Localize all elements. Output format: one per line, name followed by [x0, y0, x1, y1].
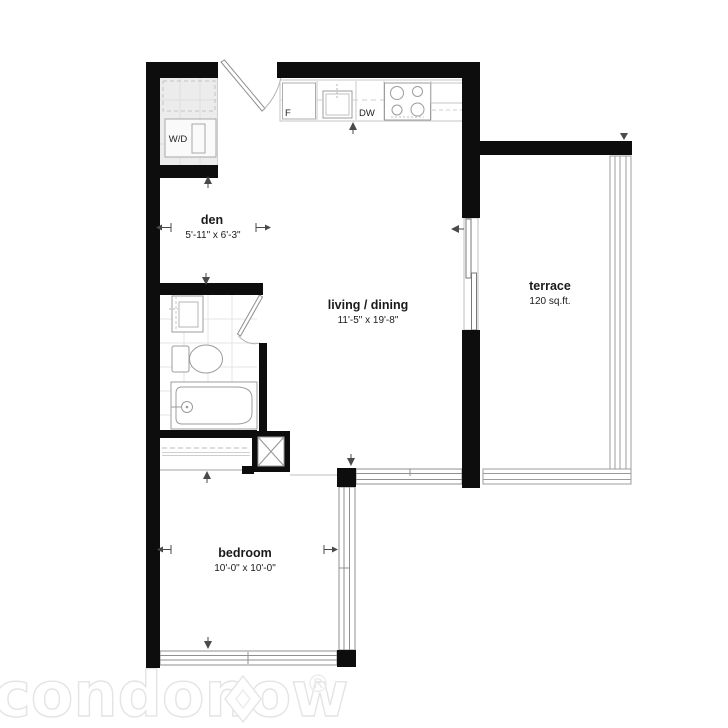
column-bedroom-top [337, 468, 356, 487]
living-dining-dims: 11'-5" x 19'-8" [338, 315, 399, 326]
terrace-sliding-door [464, 218, 478, 330]
watermark: condonow ® [0, 658, 348, 728]
sliding-door-panel-2 [472, 273, 477, 330]
kitchen: F DW [280, 80, 464, 121]
terrace-label: terrace [529, 279, 571, 293]
terrace-railing-bottom [483, 469, 631, 484]
bedroom-label: bedroom [218, 546, 271, 560]
kitchen-end-cabinet [431, 83, 463, 103]
living-dining-label: living / dining [328, 298, 409, 312]
wall-laundry-bottom [160, 165, 218, 178]
bedroom-right-window [339, 487, 355, 650]
wall-right-upper [462, 62, 480, 218]
terrace-railing-right [610, 156, 631, 469]
wall-bathroom-top [160, 283, 263, 295]
wall-bathroom-right [259, 343, 267, 432]
bathtub-drain-dot [186, 406, 189, 409]
dishwasher-label: DW [359, 108, 375, 119]
den-dims: 5'-11" x 6'-3" [185, 230, 241, 241]
fridge-label: F [285, 108, 291, 119]
shaft [252, 431, 290, 472]
wall-top-entry [146, 62, 218, 78]
toilet-bowl [190, 345, 223, 373]
column-bedroom-bottom [337, 650, 356, 667]
terrace-area: 120 sq.ft. [529, 296, 570, 307]
floor-plan-page: condonow ® W/D F DW [0, 0, 728, 728]
living-room-window [356, 469, 462, 484]
washer-dryer-label: W/D [169, 134, 188, 145]
kitchen-sink [323, 91, 352, 118]
bedroom-dims: 10'-0" x 10'-0" [214, 563, 276, 574]
toilet-tank [172, 346, 189, 372]
sliding-door-panel-1 [466, 219, 471, 278]
bedroom-bottom-window [160, 651, 337, 665]
laundry-closet: W/D [160, 78, 218, 165]
wall-terrace-top [480, 141, 632, 155]
wall-left [146, 62, 160, 668]
watermark-brand-text: condonow [0, 658, 348, 728]
den-label: den [201, 213, 223, 227]
stove [385, 83, 431, 120]
floor-plan: condonow ® W/D F DW [0, 0, 728, 728]
wall-bathroom-bottom [160, 430, 257, 438]
wall-top-kitchen [277, 62, 480, 78]
watermark-registered-mark: ® [306, 670, 330, 698]
wall-right-lower [462, 330, 480, 488]
